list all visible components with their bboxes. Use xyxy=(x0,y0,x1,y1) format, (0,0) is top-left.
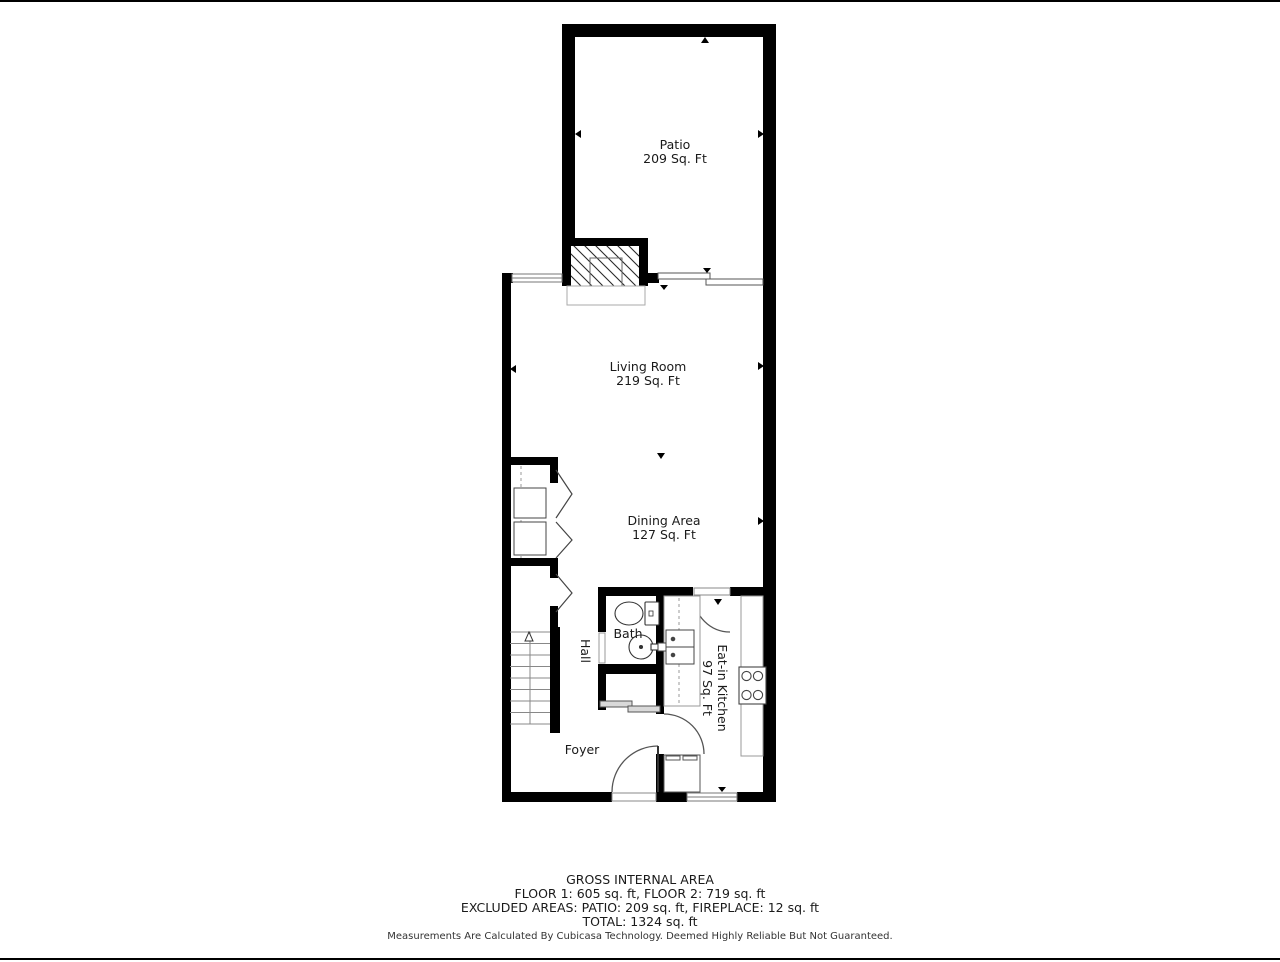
bath-label: Bath xyxy=(613,626,642,641)
living-room-area: 219 Sq. Ft xyxy=(616,373,680,388)
fireplace xyxy=(562,238,648,305)
dining-area-area: 127 Sq. Ft xyxy=(632,527,696,542)
laundry-closet xyxy=(514,466,546,558)
footer-title: GROSS INTERNAL AREA xyxy=(566,872,714,887)
bath-door xyxy=(599,633,605,663)
hearth xyxy=(567,286,645,305)
floor-plan-canvas: Patio 209 Sq. Ft Living Room 219 Sq. Ft … xyxy=(0,2,1280,962)
stairs-up-arrow-icon xyxy=(525,632,533,641)
kitchen-window xyxy=(687,793,737,801)
footer-disclaimer: Measurements Are Calculated By Cubicasa … xyxy=(387,931,892,942)
refrigerator xyxy=(664,755,700,792)
hall-label: Hall xyxy=(578,639,593,663)
toilet xyxy=(615,602,659,625)
washer xyxy=(514,488,546,518)
living-room-window xyxy=(512,274,562,282)
footer-total: TOTAL: 1324 sq. ft xyxy=(581,914,697,929)
dining-area-label: Dining Area xyxy=(627,513,700,528)
patio-sliding-door xyxy=(658,273,763,285)
patio-label: Patio xyxy=(660,137,691,152)
foyer-closet-sliding-doors xyxy=(600,701,660,712)
marker-icon xyxy=(657,453,665,459)
dryer xyxy=(514,522,546,555)
marker-icon xyxy=(703,268,711,273)
staircase xyxy=(510,632,550,724)
marker-icon xyxy=(575,130,581,138)
marker-icon xyxy=(660,285,668,290)
marker-icon xyxy=(701,37,709,43)
kitchen-area: 97 Sq. Ft xyxy=(700,660,715,716)
living-room-label: Living Room xyxy=(610,359,687,374)
floor-plan-page: Patio 209 Sq. Ft Living Room 219 Sq. Ft … xyxy=(0,0,1280,960)
marker-icon xyxy=(714,599,722,605)
patio-area: 209 Sq. Ft xyxy=(643,151,707,166)
entry-door xyxy=(612,746,658,801)
exterior-walls xyxy=(502,24,776,802)
foyer-label: Foyer xyxy=(565,742,600,757)
bifold-doors xyxy=(556,470,572,612)
cooktop xyxy=(739,667,766,704)
kitchen-label: Eat-in Kitchen xyxy=(715,644,730,731)
footer-floors: FLOOR 1: 605 sq. ft, FLOOR 2: 719 sq. ft xyxy=(515,886,766,901)
entry-threshold xyxy=(612,793,656,801)
kitchen-foyer-door xyxy=(664,714,704,754)
marker-icon xyxy=(718,787,726,792)
footer: GROSS INTERNAL AREA FLOOR 1: 605 sq. ft,… xyxy=(387,872,892,942)
footer-excluded: EXCLUDED AREAS: PATIO: 209 sq. ft, FIREP… xyxy=(461,900,819,915)
